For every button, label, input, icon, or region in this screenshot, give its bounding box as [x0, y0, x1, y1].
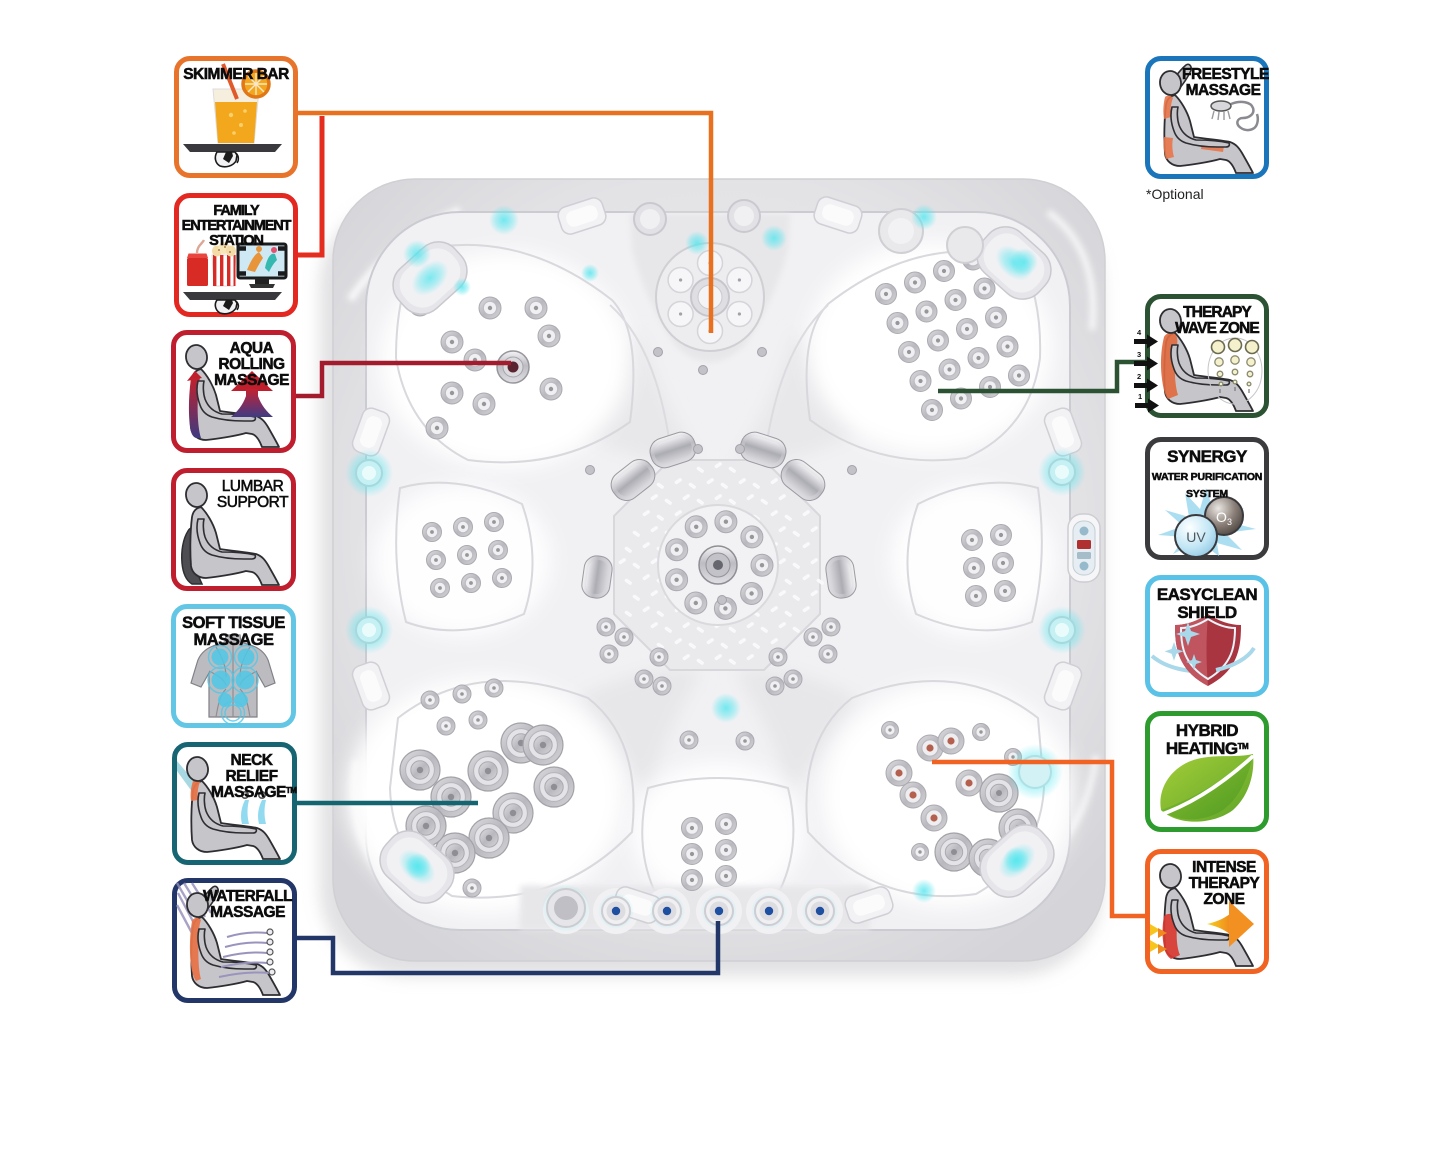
svg-text:1: 1 — [1138, 392, 1142, 401]
svg-text:2: 2 — [1137, 372, 1141, 381]
svg-text:3: 3 — [1137, 350, 1141, 359]
svg-text:UV: UV — [1186, 529, 1206, 545]
